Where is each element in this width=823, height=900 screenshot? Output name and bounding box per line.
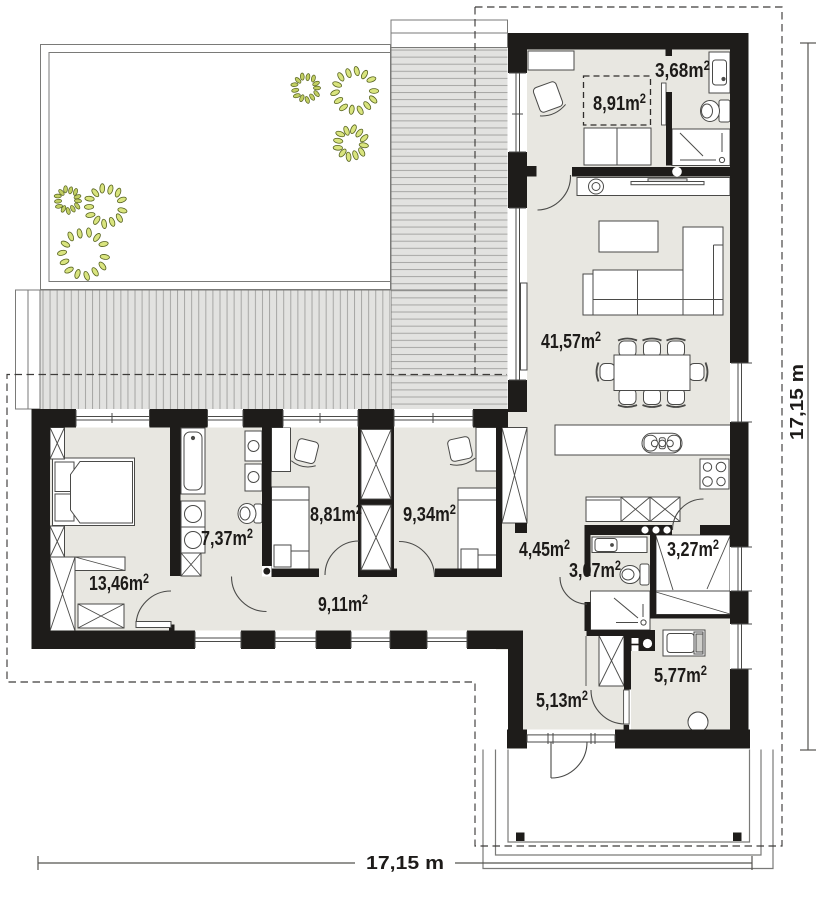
svg-text:3,27m2: 3,27m2 xyxy=(667,537,719,561)
svg-text:3,68m2: 3,68m2 xyxy=(655,58,710,82)
svg-text:5,13m2: 5,13m2 xyxy=(536,688,588,712)
svg-text:8,81m2: 8,81m2 xyxy=(310,502,362,526)
svg-text:17,15 m: 17,15 m xyxy=(787,364,807,440)
svg-text:9,11m2: 9,11m2 xyxy=(318,592,368,616)
svg-text:5,77m2: 5,77m2 xyxy=(654,663,707,687)
svg-text:17,15 m: 17,15 m xyxy=(366,853,444,873)
svg-text:8,91m2: 8,91m2 xyxy=(593,91,646,115)
svg-text:7,37m2: 7,37m2 xyxy=(201,526,253,550)
svg-text:9,34m2: 9,34m2 xyxy=(403,502,456,526)
svg-text:13,46m2: 13,46m2 xyxy=(89,571,149,595)
svg-text:41,57m2: 41,57m2 xyxy=(541,329,601,353)
svg-text:3,07m2: 3,07m2 xyxy=(569,558,621,582)
svg-text:4,45m2: 4,45m2 xyxy=(519,537,570,561)
